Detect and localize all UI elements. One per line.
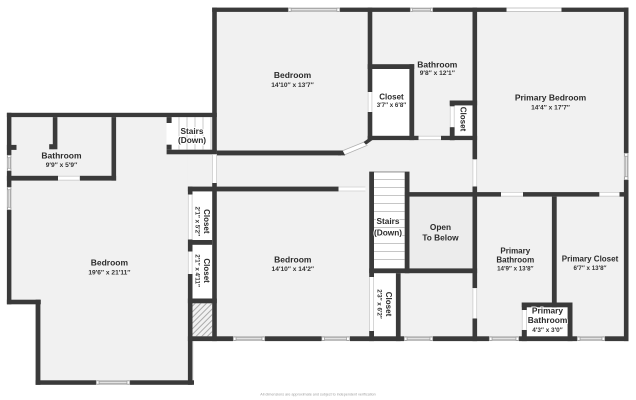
svg-text:Closet: Closet — [202, 258, 211, 283]
svg-text:Primary Bedroom: Primary Bedroom — [515, 93, 587, 103]
svg-text:Bathroom: Bathroom — [528, 315, 568, 325]
svg-text:Primary Closet: Primary Closet — [562, 254, 619, 263]
svg-text:14′10″ x 13′7″: 14′10″ x 13′7″ — [271, 82, 314, 89]
svg-text:Closet: Closet — [379, 93, 404, 102]
svg-text:Closet: Closet — [202, 209, 211, 234]
svg-text:Primary: Primary — [532, 306, 564, 316]
svg-text:Bathroom: Bathroom — [496, 256, 534, 265]
svg-text:14′10″ x 14′2″: 14′10″ x 14′2″ — [272, 266, 315, 273]
svg-text:6′7″ x 13′8″: 6′7″ x 13′8″ — [574, 265, 607, 272]
svg-text:9′8″ x 12′1″: 9′8″ x 12′1″ — [420, 70, 456, 77]
svg-text:(Down): (Down) — [374, 228, 402, 238]
svg-text:19′6″ x 21′11″: 19′6″ x 21′11″ — [88, 269, 131, 276]
svg-text:2′1″ x 4′11″: 2′1″ x 4′11″ — [193, 254, 200, 287]
svg-text:4′3″ x 3′0″: 4′3″ x 3′0″ — [532, 327, 563, 334]
svg-text:To Below: To Below — [422, 232, 459, 242]
svg-text:Bedroom: Bedroom — [91, 257, 129, 267]
svg-text:14′4″ x 17′7″: 14′4″ x 17′7″ — [531, 105, 571, 112]
svg-text:All dimensions are approximate: All dimensions are approximate and subje… — [260, 393, 375, 397]
svg-text:Primary: Primary — [500, 247, 530, 256]
svg-text:Bathroom: Bathroom — [41, 150, 82, 160]
svg-text:(Down): (Down) — [178, 135, 206, 145]
svg-text:Open: Open — [430, 222, 451, 232]
svg-text:Closet: Closet — [384, 292, 393, 317]
svg-text:2′3″ x 6′2″: 2′3″ x 6′2″ — [375, 289, 382, 319]
svg-text:14′9″ x 13′8″: 14′9″ x 13′8″ — [497, 265, 533, 272]
svg-text:3′7″ x 6′8″: 3′7″ x 6′8″ — [377, 102, 407, 109]
svg-text:Bedroom: Bedroom — [274, 70, 312, 80]
svg-text:Closet: Closet — [458, 107, 467, 132]
svg-text:Stairs: Stairs — [376, 216, 399, 226]
svg-text:2′1″ x 5′2″: 2′1″ x 5′2″ — [193, 207, 200, 237]
svg-text:Bathroom: Bathroom — [417, 60, 458, 70]
svg-text:9′9″ x 5′9″: 9′9″ x 5′9″ — [46, 162, 78, 169]
svg-text:Bedroom: Bedroom — [274, 255, 312, 265]
